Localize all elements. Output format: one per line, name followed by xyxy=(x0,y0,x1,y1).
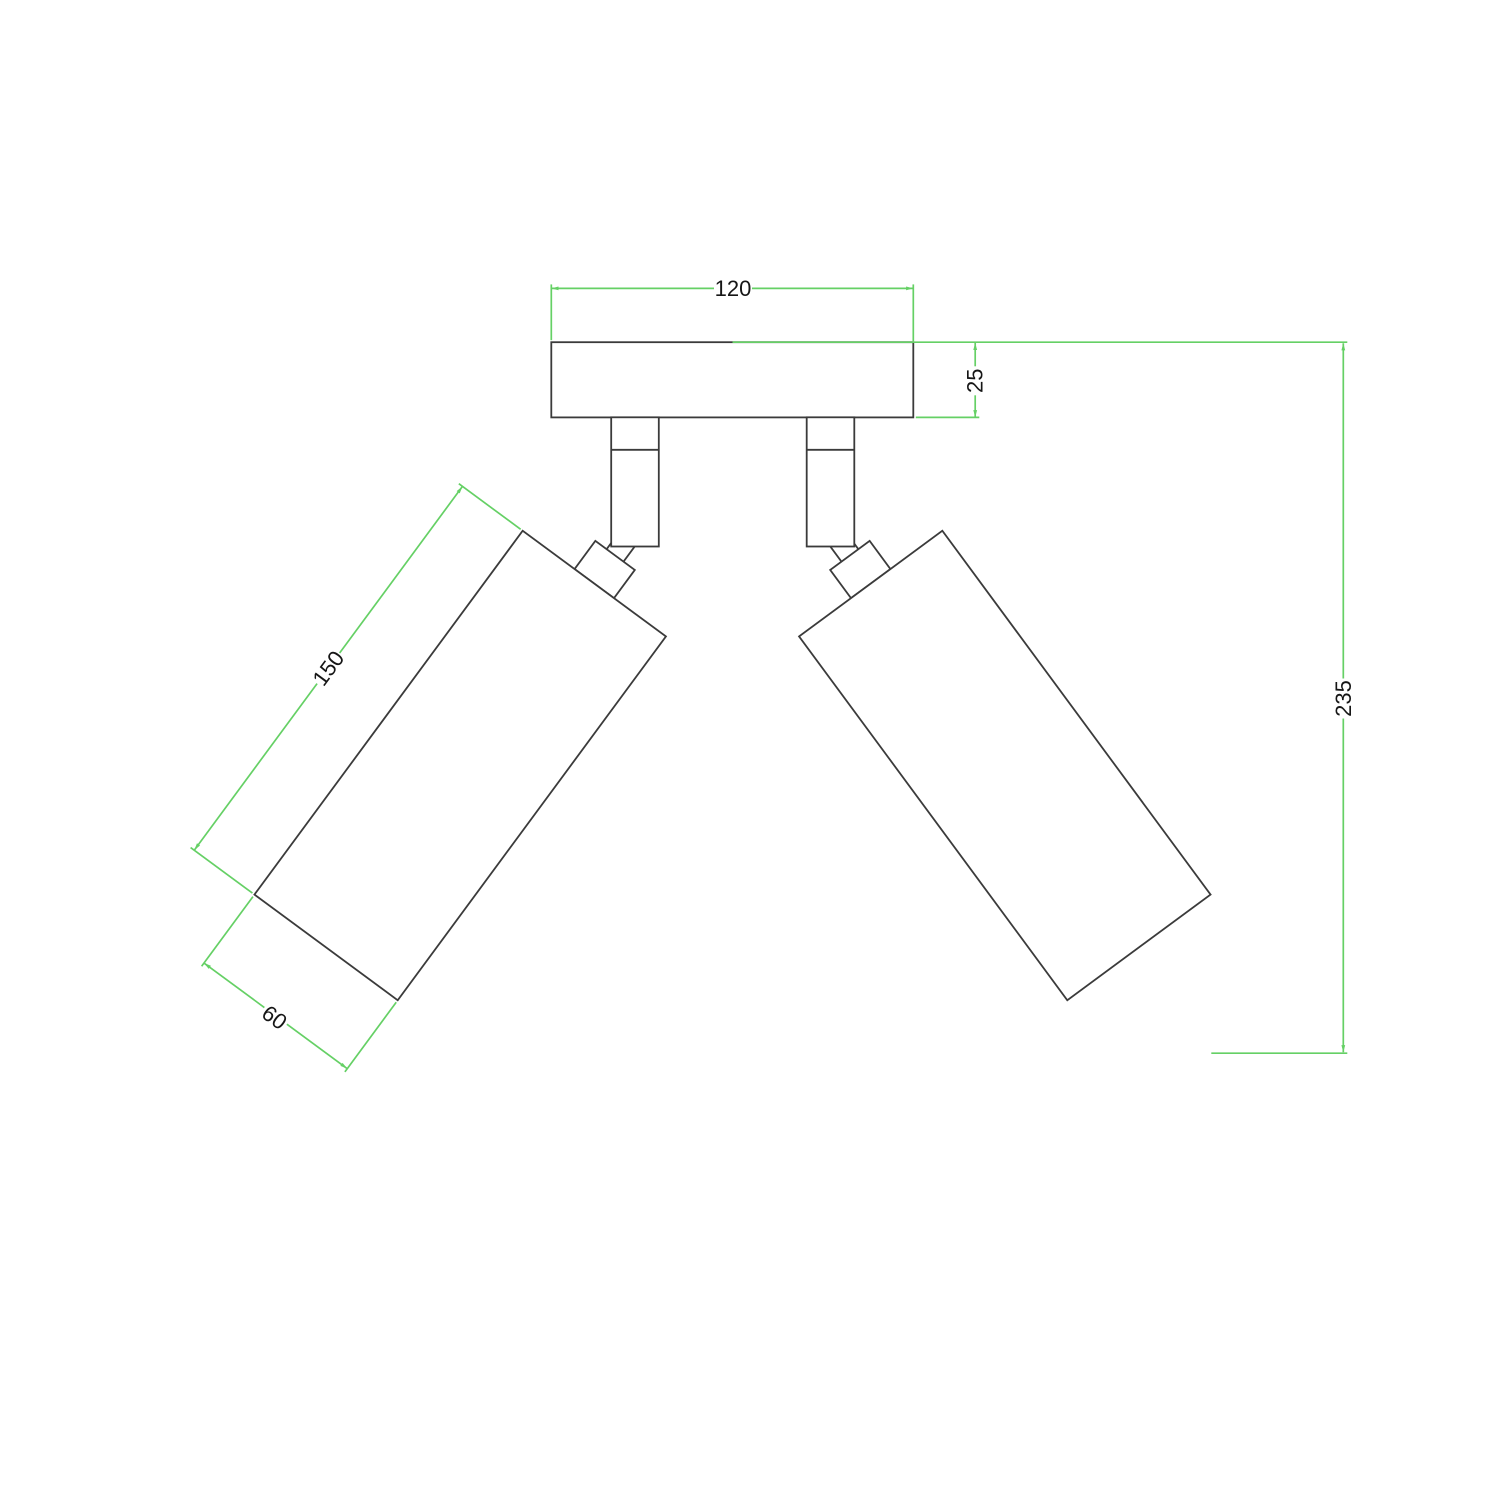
svg-text:25: 25 xyxy=(963,369,988,393)
svg-text:120: 120 xyxy=(715,276,752,301)
svg-text:235: 235 xyxy=(1331,680,1356,717)
